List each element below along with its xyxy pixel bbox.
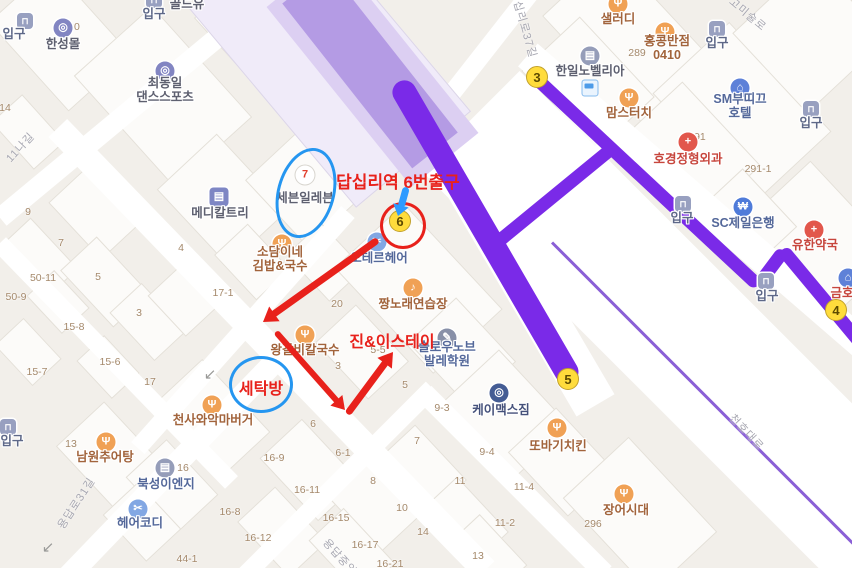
restaurant-icon[interactable]: Ψ [548,419,567,438]
poi-label[interactable]: 장어시대 [556,503,696,517]
poi-label[interactable]: 샐러디 [548,12,688,26]
parcel-number: 15-6 [75,356,145,368]
parcel-number: 14 [0,102,40,114]
parcel-number: 16-9 [239,452,309,464]
parcel-number: 3 [104,307,174,319]
restaurant-icon[interactable]: Ψ [615,485,634,504]
poi-label[interactable]: 메디칼트리 [150,206,290,220]
hospital-cross-icon[interactable]: + [679,133,698,152]
map-canvas[interactable]: 답십리역 6번출구 진&이스테이 세탁방 고미술로답십리로37길천호대로용답중앙… [0,0,852,568]
restaurant-icon[interactable]: Ψ [620,89,639,108]
oneway-arrow-icon: ↙ [204,365,217,383]
subway-exit-circle[interactable]: 4 [825,299,847,321]
restaurant-icon[interactable]: Ψ [296,326,315,345]
building-icon[interactable]: ⌂ [839,269,852,288]
poi-label[interactable]: 헤어코디 [70,516,210,530]
poi-label[interactable]: 입구 [741,116,852,130]
parcel-number: 11-4 [489,481,559,493]
parcel-number: 15-8 [39,321,109,333]
parcel-number: 16-15 [301,512,371,524]
poi-label[interactable]: 입구 [0,434,82,448]
poi-label[interactable]: 금호 [772,286,852,300]
parcel-number: 13 [443,550,513,562]
parcel-number: 11-2 [470,517,540,529]
parcel-number: 296 [558,518,628,530]
parcel-number: 10 [367,502,437,514]
parcel-number: 5 [370,379,440,391]
restaurant-icon[interactable]: Ψ [97,433,116,452]
annotation-jin-stay: 진&이스테이 [349,328,434,352]
parcel-number: 50-9 [0,291,51,303]
gym-icon[interactable]: ◎ [490,384,509,403]
poi-label[interactable]: 북성이엔지 [96,477,236,491]
parcel-number: 16-21 [355,558,425,568]
parcel-number: 4 [146,242,216,254]
entrance-icon[interactable]: ⊓ [0,419,16,435]
poi-label[interactable]: 유한약국 [745,238,852,252]
parcel-number: 17-1 [188,287,258,299]
poi-label[interactable]: 입구 [84,7,224,21]
parcel-number: 8 [338,475,408,487]
annotation-exit-callout: 답십리역 6번출구 [336,168,460,193]
parcel-number: 7 [382,435,452,447]
poi-label[interactable]: 케이맥스짐 [431,403,571,417]
poi-label[interactable]: 또바기치킨 [488,439,628,453]
parcel-number: 44-1 [152,553,222,565]
parcel-number: 16-12 [223,532,293,544]
parcel-number: 14 [388,526,458,538]
music-note-icon[interactable]: ♪ [404,279,423,298]
annotation-laundry: 세탁방 [239,375,283,399]
poi-label[interactable]: 천사와악마버거 [143,413,283,427]
poi-label[interactable]: 짱노래연습장 [343,297,483,311]
bus-stop-icon[interactable] [582,80,599,97]
poi-label[interactable]: 최동일댄스스포츠 [95,76,235,104]
poi-label[interactable]: 입구 [647,36,787,50]
oneway-arrow-icon: ↙ [42,538,55,556]
parcel-number: 7 [26,237,96,249]
poi-label[interactable]: 입구 [612,211,752,225]
poi-label[interactable]: 오테르헤어 [309,251,449,265]
poi-label[interactable]: 호경정형외과 [618,152,758,166]
parcel-number: 15-7 [2,366,72,378]
parcel-number: 50-11 [8,272,78,284]
building-icon[interactable]: ▤ [210,188,229,207]
poi-label[interactable]: 남원추어탕 [35,450,175,464]
restaurant-icon[interactable]: Ψ [203,396,222,415]
parcel-number: 6-1 [308,447,378,459]
subway-exit-circle[interactable]: 5 [557,368,579,390]
parcel-number: 16-11 [272,484,342,496]
parcel-number: 6 [278,418,348,430]
subway-exit-circle[interactable]: 3 [526,66,548,88]
parcel-number: 17 [115,376,185,388]
poi-label[interactable]: 한성몰 [0,37,133,51]
parcel-number: 11 [425,475,495,487]
entrance-icon[interactable]: ⊓ [675,196,691,212]
parcel-number: 9 [0,206,63,218]
